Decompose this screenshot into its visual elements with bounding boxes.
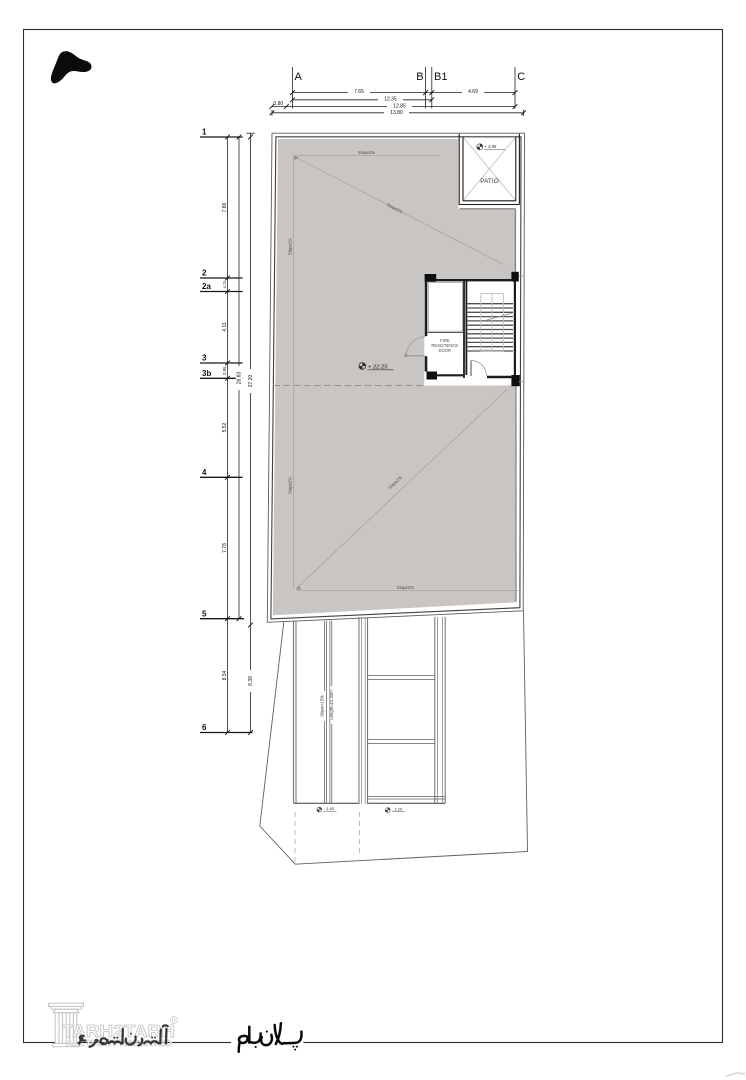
svg-text:7.65: 7.65: [354, 89, 364, 95]
svg-text:Slope2%: Slope2%: [287, 477, 292, 494]
svg-text:Slope2%: Slope2%: [358, 150, 375, 155]
svg-text:Slope2%: Slope2%: [397, 585, 414, 590]
svg-text:4.11: 4.11: [222, 322, 228, 332]
svg-text:A: A: [295, 71, 303, 83]
svg-text:1: 1: [202, 128, 207, 137]
svg-text:C: C: [517, 71, 525, 83]
svg-text:13.80: 13.80: [390, 110, 403, 116]
svg-text:Slope2%: Slope2%: [287, 238, 292, 255]
svg-text:- 1.10: - 1.10: [392, 807, 403, 812]
svg-text:Slope=15%: Slope=15%: [319, 695, 324, 717]
svg-text:7.78: 7.78: [222, 543, 228, 553]
svg-text:12.35: 12.35: [384, 97, 397, 103]
svg-text:Length=10.20m: Length=10.20m: [329, 690, 334, 720]
svg-text:2a: 2a: [202, 282, 211, 291]
svg-text:PATIO: PATIO: [480, 178, 499, 185]
svg-text:0.95: 0.95: [222, 366, 227, 375]
svg-text:6: 6: [202, 723, 207, 732]
svg-text:2: 2: [202, 269, 207, 278]
svg-text:8.39: 8.39: [248, 676, 254, 686]
svg-text:4.69: 4.69: [468, 89, 478, 95]
svg-text:DOOR: DOOR: [439, 348, 452, 353]
svg-text:0.75: 0.75: [223, 281, 227, 288]
svg-text:8.34: 8.34: [222, 670, 228, 680]
svg-text:B1: B1: [434, 71, 447, 83]
svg-text:3b: 3b: [202, 369, 211, 378]
svg-text:3: 3: [202, 354, 207, 363]
svg-text:B: B: [416, 71, 423, 83]
svg-text:27.20: 27.20: [248, 375, 254, 388]
svg-text:+ 22.25: + 22.25: [368, 364, 388, 370]
svg-text:7.86: 7.86: [222, 202, 228, 212]
svg-text:+ 4.85: + 4.85: [485, 144, 497, 149]
svg-text:26.83: 26.83: [236, 372, 242, 385]
svg-text:- 1.45: - 1.45: [324, 806, 335, 811]
svg-text:0.80: 0.80: [273, 101, 283, 107]
svg-text:R: R: [172, 1018, 177, 1024]
svg-text:4: 4: [202, 468, 207, 477]
svg-text:5.52: 5.52: [222, 422, 228, 432]
svg-text:5: 5: [202, 609, 207, 618]
